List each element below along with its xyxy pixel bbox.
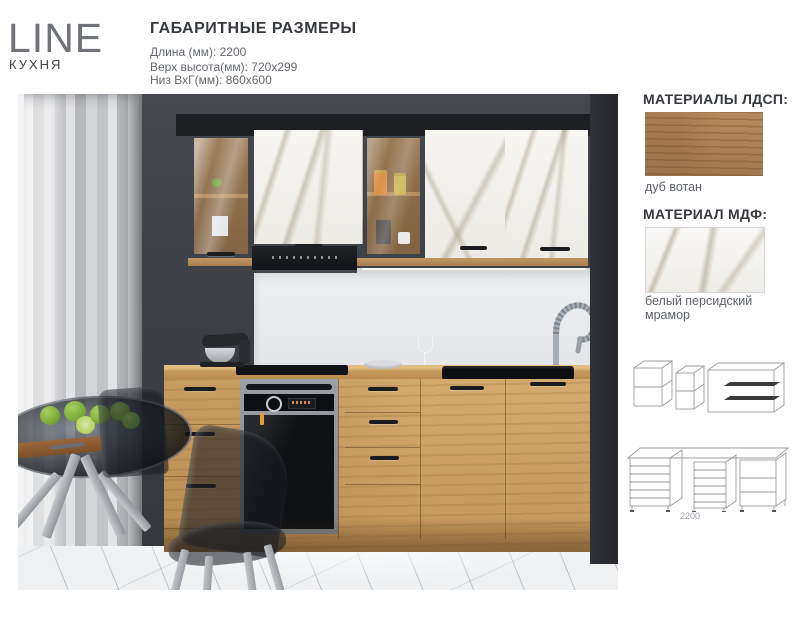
plate — [364, 360, 402, 369]
mdf-heading: МАТЕРИАЛ МДФ: — [643, 206, 767, 222]
marble-door-right-2 — [505, 130, 588, 260]
upper-handle-3 — [460, 246, 487, 250]
wine-glass — [418, 337, 433, 353]
glass-cabinet — [188, 130, 255, 260]
marble-swatch — [645, 227, 765, 293]
dimension-top: Верх высота(мм): 720x299 — [150, 60, 297, 74]
cabinet-bottom-trim — [188, 258, 588, 266]
cooktop — [236, 365, 348, 375]
upper-cabinet-run — [188, 130, 588, 266]
glass-pane — [194, 138, 248, 254]
brand-logo: LINE — [8, 18, 103, 59]
wood-swatch — [645, 112, 763, 176]
ldsp-heading: МАТЕРИАЛЫ ЛДСП: — [643, 91, 788, 107]
sink — [442, 366, 574, 380]
display-glass-pane — [367, 138, 420, 254]
wireframe-upper-cabinets — [628, 348, 788, 428]
right-wall-panel — [590, 94, 618, 564]
dimension-length: Длина (мм): 2200 — [150, 45, 246, 59]
marble-door-over-hood — [254, 130, 363, 244]
wireframe-base-cabinets — [624, 434, 794, 512]
range-hood — [252, 246, 357, 273]
dimension-bottom: Низ ВхГ(мм): 860x600 — [150, 73, 272, 87]
lime — [40, 406, 60, 425]
ldsp-material-name: дуб вотан — [645, 180, 702, 194]
hood-controls — [272, 256, 342, 259]
wireframe-length-label: 2200 — [655, 511, 725, 521]
display-cabinet — [362, 130, 426, 260]
mixer-column — [239, 340, 250, 364]
kitchen-photo — [18, 94, 618, 590]
mixer-base — [200, 362, 244, 367]
under-cabinet-light — [362, 268, 586, 270]
marble-door-right-1 — [425, 130, 506, 260]
tiled-floor — [18, 546, 618, 590]
brand-subtitle: КУХНЯ — [9, 57, 62, 72]
chair-back — [97, 386, 169, 478]
upper-handle-4 — [540, 247, 570, 251]
dimensions-title: ГАБАРИТНЫЕ РАЗМЕРЫ — [150, 20, 357, 38]
upper-handle-1 — [207, 252, 235, 256]
mixer-bowl — [205, 348, 235, 363]
catalog-page: LINE КУХНЯ ГАБАРИТНЫЕ РАЗМЕРЫ Длина (мм)… — [0, 0, 800, 621]
mdf-material-name: белый персидский мрамор — [645, 294, 800, 322]
